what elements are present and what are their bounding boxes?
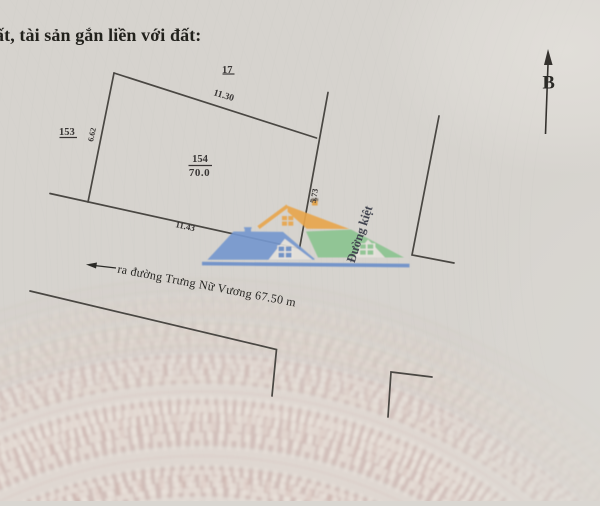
svg-text:153: 153 bbox=[59, 127, 75, 138]
svg-text:B: B bbox=[543, 74, 555, 94]
svg-text:154: 154 bbox=[192, 154, 209, 165]
svg-text:70.0: 70.0 bbox=[189, 167, 210, 179]
svg-text:ất, tài sản gắn liền với đất:: ất, tài sản gắn liền với đất: bbox=[0, 25, 201, 45]
